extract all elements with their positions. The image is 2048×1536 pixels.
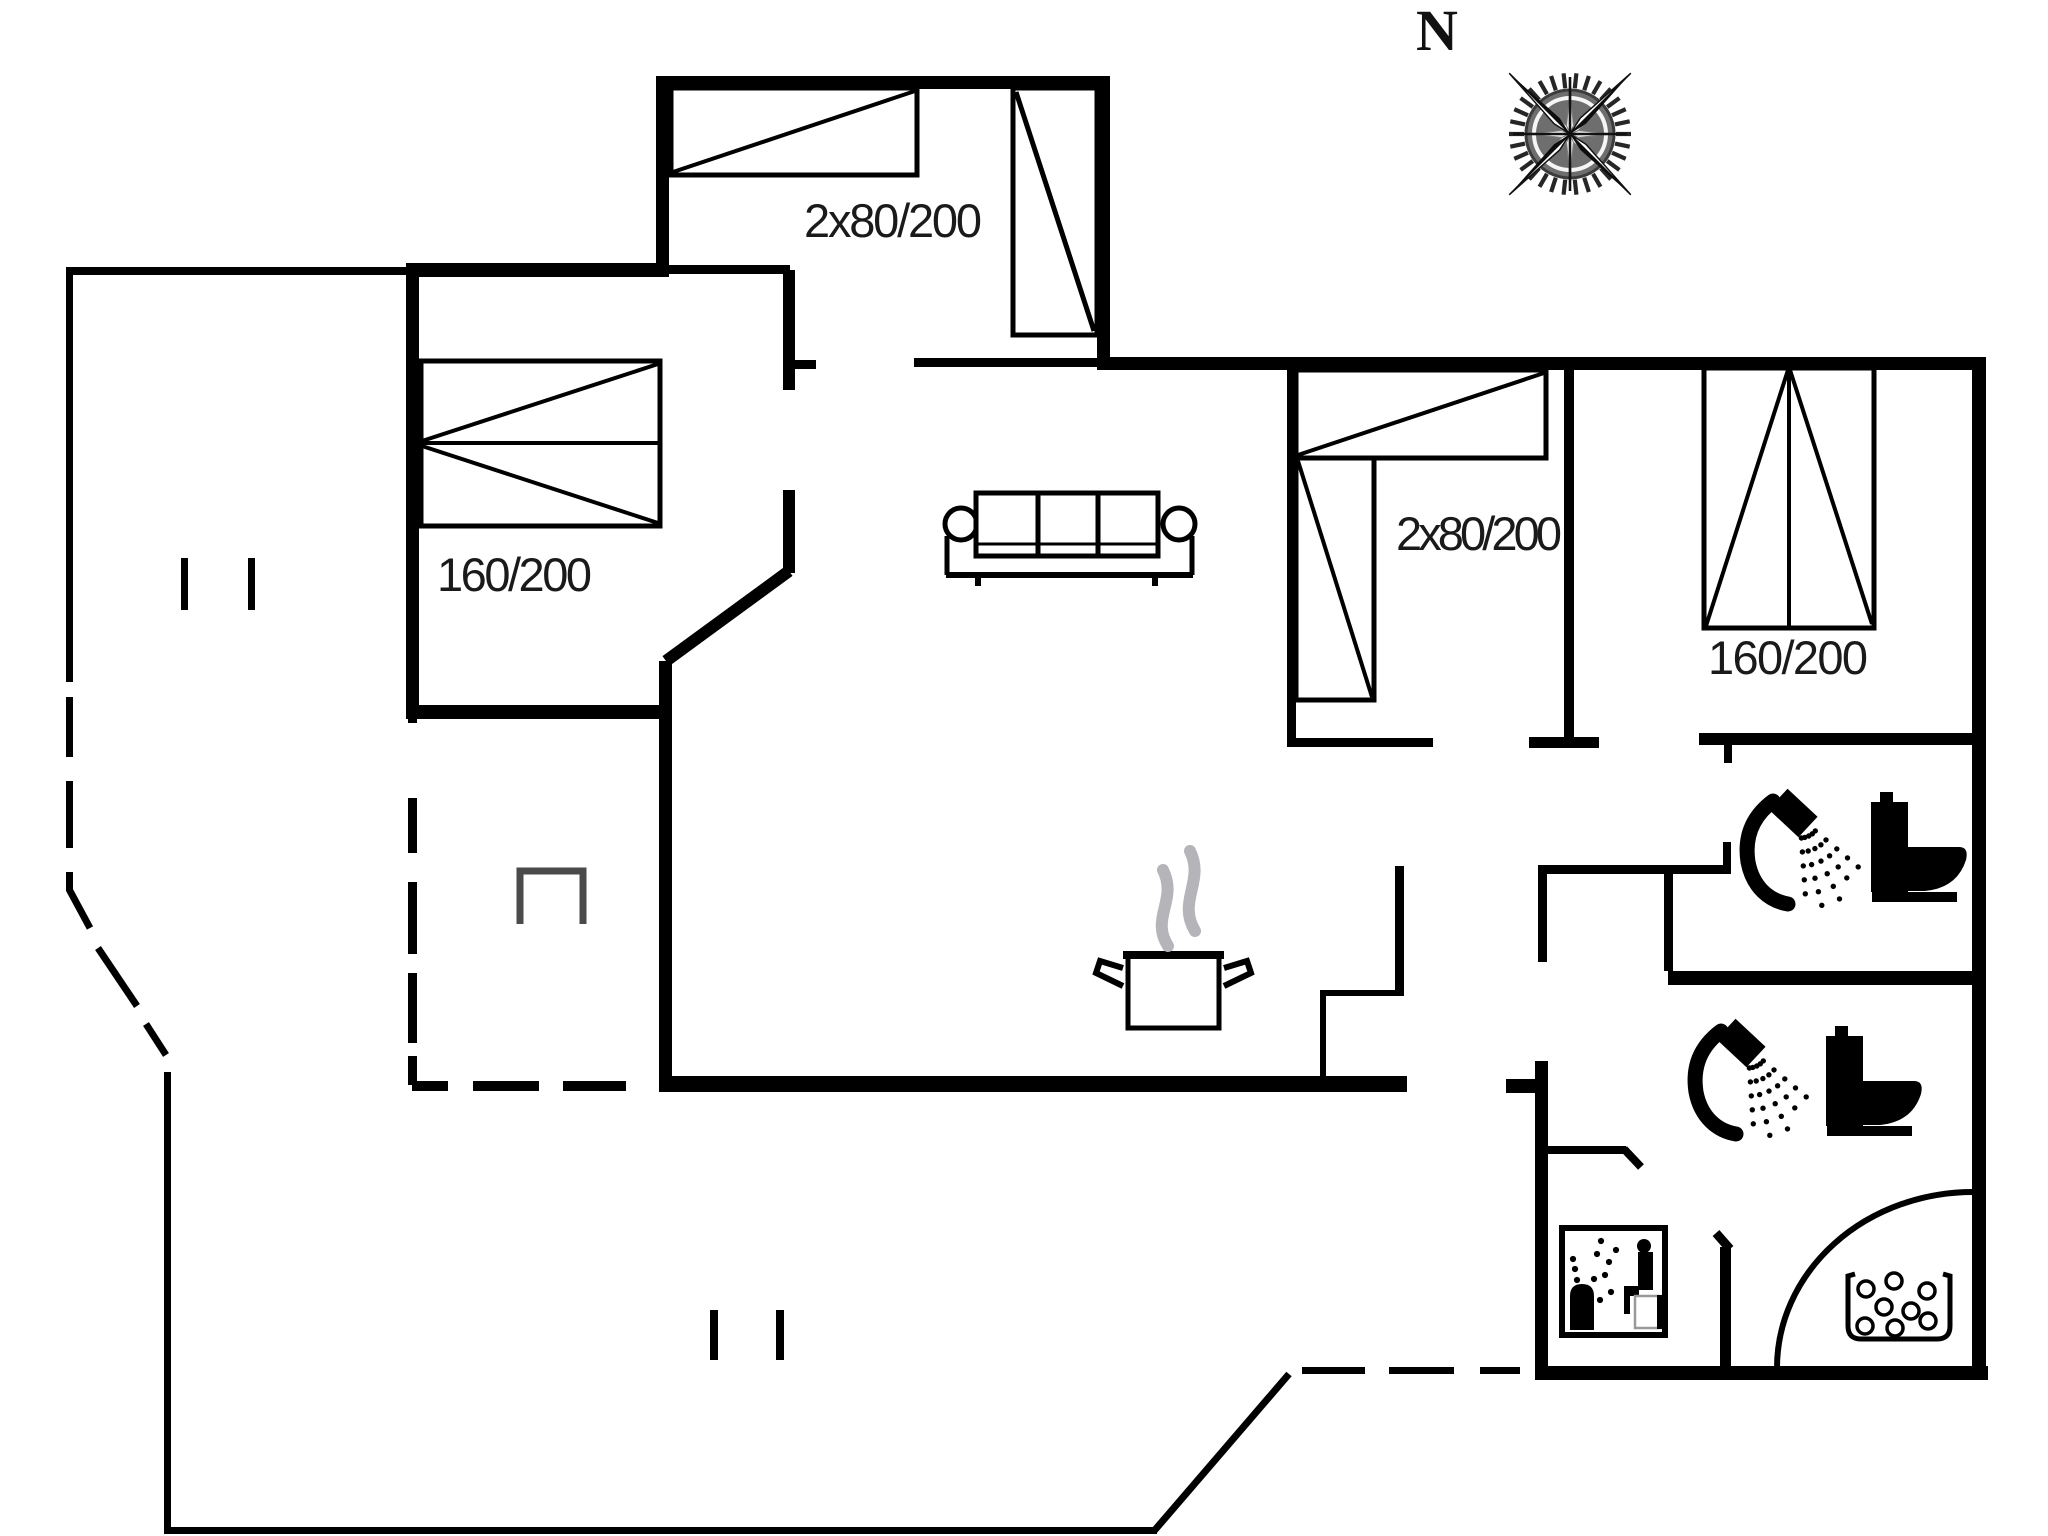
svg-text:2x80/200: 2x80/200 [804, 194, 982, 247]
svg-text:N: N [1416, 0, 1458, 63]
svg-text:160/200: 160/200 [1708, 631, 1868, 684]
svg-text:2x80/200: 2x80/200 [1396, 507, 1562, 560]
svg-text:160/200: 160/200 [437, 548, 592, 601]
